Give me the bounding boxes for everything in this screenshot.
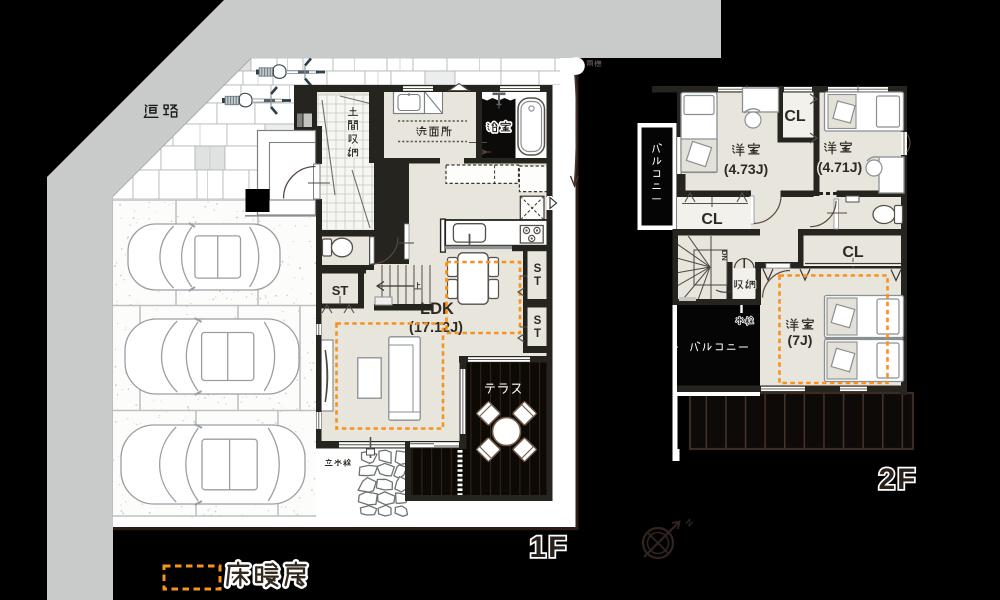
svg-text:2F: 2F	[878, 463, 917, 496]
svg-text:ST: ST	[332, 283, 349, 298]
svg-text:1F: 1F	[529, 531, 568, 564]
svg-text:DN: DN	[720, 250, 729, 261]
svg-text:S: S	[534, 263, 542, 275]
svg-text:T: T	[534, 276, 541, 288]
svg-text:CL: CL	[701, 211, 723, 228]
svg-text:CL: CL	[784, 108, 806, 125]
svg-text:S: S	[534, 315, 542, 327]
svg-text:T: T	[534, 328, 541, 340]
svg-text:(4.71J): (4.71J)	[818, 159, 862, 175]
svg-text:(7J): (7J)	[788, 332, 813, 348]
svg-text:(4.73J): (4.73J)	[724, 161, 768, 177]
